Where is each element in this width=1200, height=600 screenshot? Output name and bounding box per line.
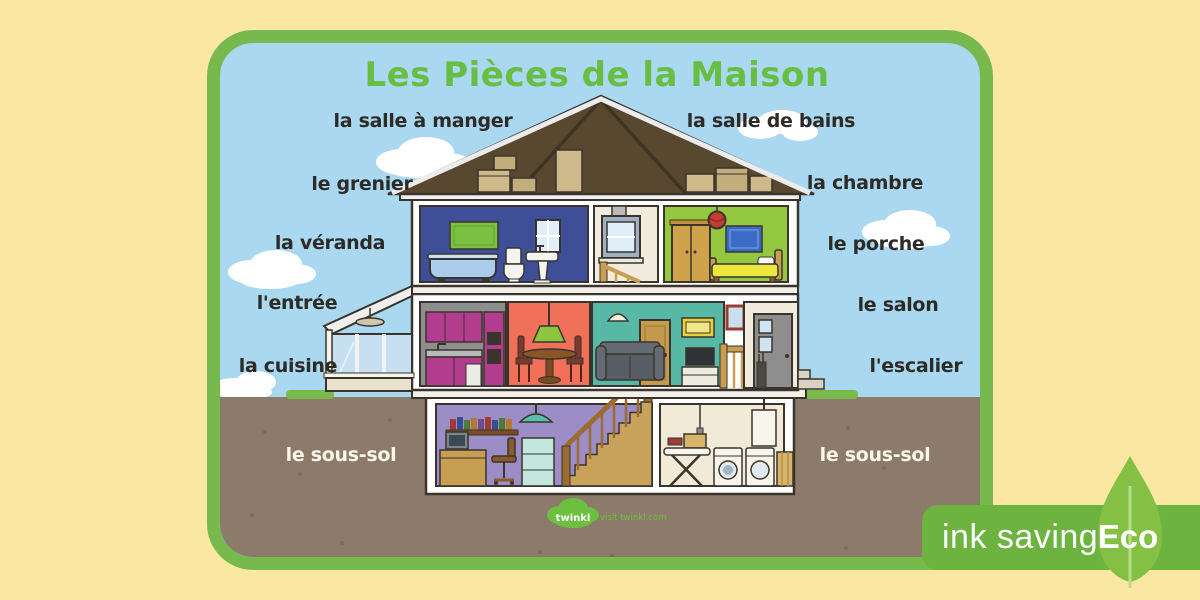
twinkl-logo-text: twinkl [556, 513, 591, 524]
washing-machine [714, 448, 742, 486]
grass-right [800, 390, 858, 399]
office-cabinet [522, 438, 554, 486]
label-veranda: la véranda [275, 232, 385, 254]
entrance-porch [744, 302, 824, 389]
hall-picture [727, 306, 744, 329]
label-sous-sol-right: le sous-sol [820, 444, 931, 466]
label-cuisine: la cuisine [239, 355, 338, 377]
label-sous-sol-left: le sous-sol [286, 444, 397, 466]
page-title: Les Pièces de la Maison [364, 55, 829, 95]
label-salle-a-manger: la salle à manger [334, 110, 513, 132]
poster-page: twinkl visit twinkl.com Les Pièces de la… [0, 0, 1200, 600]
twinkl-tagline: visit twinkl.com [600, 513, 666, 523]
label-salle-de-bains: la salle de bains [687, 110, 855, 132]
laundry-basket [777, 452, 793, 486]
veranda-structure [324, 286, 414, 391]
dryer [746, 448, 774, 486]
ink-saving-label: ink saving [922, 518, 1098, 557]
label-grenier: le grenier [311, 173, 412, 195]
label-entree: l'entrée [257, 292, 338, 314]
cloud [228, 250, 316, 289]
label-salon: le salon [858, 294, 939, 316]
label-chambre: la chambre [807, 172, 923, 194]
eco-label: Eco [1096, 518, 1160, 556]
label-porche: le porche [827, 233, 924, 255]
label-escalier: l'escalier [870, 355, 963, 377]
